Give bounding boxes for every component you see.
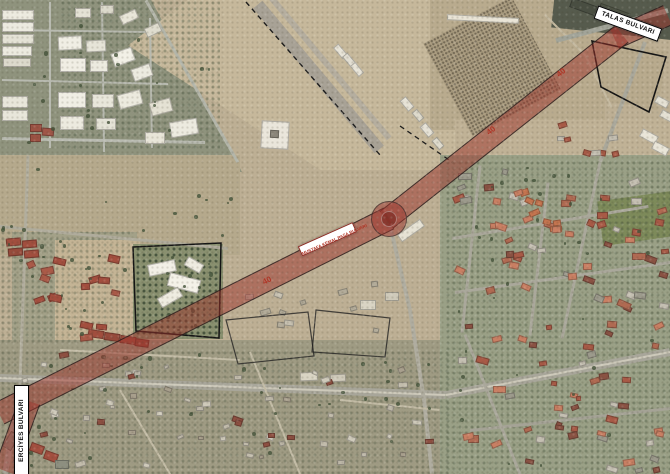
tree [90,126,94,130]
tree [208,263,210,265]
tree [29,451,33,455]
building [60,58,86,72]
building [92,94,114,108]
building [565,230,575,237]
building [551,381,557,387]
building [30,134,41,142]
building [622,377,632,383]
building [337,459,345,465]
tree [36,168,40,172]
tree [490,237,493,240]
building [654,218,664,226]
building [458,357,467,365]
building [566,194,577,202]
building [98,276,111,283]
building [58,92,86,108]
building [300,299,307,306]
building [372,327,379,333]
tree [103,388,107,392]
building [130,393,137,399]
tree [198,286,201,289]
tree [500,181,504,185]
building [349,305,357,312]
tree [10,225,13,228]
building [2,96,28,108]
building [484,184,495,192]
building [546,324,552,330]
building [2,46,32,56]
building [631,198,642,205]
building [96,118,116,130]
building [86,39,107,52]
street [49,2,51,148]
tree [274,412,277,415]
building [606,321,616,328]
building [283,396,291,402]
building [96,419,104,425]
building [259,308,272,317]
tree [229,197,233,201]
building [599,372,610,380]
building [399,452,406,458]
building [273,290,283,298]
tree [116,63,119,66]
tree [8,243,11,246]
building [536,436,545,444]
building [553,219,562,226]
building [81,283,90,290]
building [582,263,591,270]
building [567,273,577,281]
tree [564,242,566,244]
tree [42,256,44,258]
building [618,402,629,409]
tree [188,274,192,278]
building [625,237,635,244]
building [2,22,34,32]
tree [582,318,584,320]
building [60,116,84,130]
building [3,58,31,67]
tree [491,258,495,262]
tree [458,310,460,312]
building [22,239,38,248]
building [58,35,83,50]
building [652,342,660,349]
building [2,34,34,44]
tree [263,367,266,370]
tree [27,141,31,145]
building [219,436,226,442]
tree [341,391,345,395]
tree [44,51,48,55]
tree [87,266,90,269]
tree [540,464,542,466]
tree [183,285,186,288]
tree [2,226,5,229]
building [582,344,594,351]
building [537,247,546,253]
tree [67,325,70,328]
building [361,452,368,458]
tree [524,178,528,182]
tree [166,272,169,275]
building [246,452,255,458]
tree [88,456,92,460]
building [489,223,496,229]
roundabout-island [381,211,397,227]
tree [83,309,86,312]
tree [390,440,393,443]
tree [40,244,44,248]
tree [646,251,650,255]
building [145,132,165,144]
building [632,253,646,260]
building [287,435,296,440]
building [202,400,212,407]
building [243,442,249,447]
erciyes-bulvari-label-text: ERCİYES BULVARI [15,386,28,474]
tree [84,432,86,434]
building [75,8,91,18]
tree [361,362,365,366]
building [385,292,399,301]
tree [569,202,572,205]
building [24,249,40,258]
building [128,430,136,435]
tree [123,268,127,272]
building [2,110,28,121]
tree [209,272,213,276]
tree [572,393,575,396]
building [337,288,348,297]
building [55,460,69,469]
tree [168,129,170,131]
tree [80,332,84,336]
tree [389,369,393,373]
building [597,211,608,218]
tree [600,198,602,200]
building [653,466,661,473]
tree [194,215,198,219]
tree [70,258,74,262]
tree [318,404,320,406]
building [198,436,204,440]
building [283,319,293,326]
building [659,302,669,310]
tree [227,202,229,204]
building [398,382,408,388]
tree [577,241,580,244]
building [661,249,669,255]
building [90,60,108,72]
building [278,309,286,316]
building [96,323,107,330]
tree [268,451,272,455]
building [425,439,434,445]
building [234,375,243,381]
building [110,405,115,409]
tree [79,84,82,87]
building [83,415,90,421]
building [100,5,114,14]
tree [200,67,204,71]
building [633,291,646,299]
tree [98,255,101,258]
tree [107,121,109,123]
tree [459,389,462,392]
tree [22,228,25,231]
tree [536,218,540,222]
building [371,280,378,286]
building [576,396,582,401]
building [492,386,505,393]
building [646,439,655,446]
building [265,395,274,401]
tree [86,114,90,118]
tree [63,244,67,248]
satellite-map: TALAS BULVARI MUSTAFA KEMAL PAŞA BULVARI… [0,0,670,474]
tree [205,199,207,201]
building [2,10,34,20]
building [30,124,42,132]
building [555,424,564,430]
tree [30,464,33,467]
building [360,300,376,310]
erciyes-bulvari-label: ERCİYES BULVARI [14,385,29,474]
tree [37,425,40,428]
building [559,412,569,419]
building [268,432,275,437]
building [552,225,562,232]
tree [148,356,152,360]
building [156,411,163,416]
tree [173,212,177,216]
building [8,247,24,256]
building [270,130,279,138]
tree [607,433,611,437]
building [553,405,563,412]
tree [208,68,210,70]
building [506,251,514,258]
tree [51,127,55,131]
building [41,362,47,368]
building [529,342,538,349]
tree [364,397,367,400]
